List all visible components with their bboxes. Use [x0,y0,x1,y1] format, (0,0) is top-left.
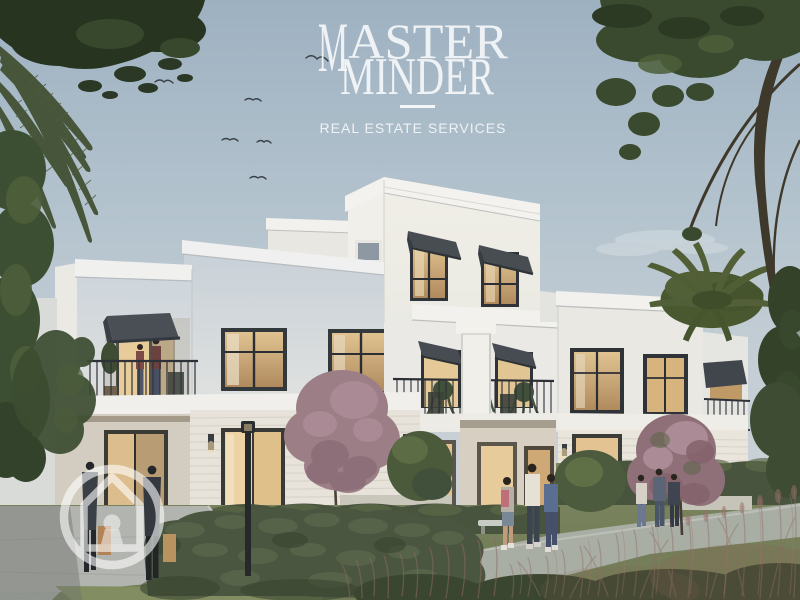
svg-text:REAL ESTATE SERVICES: REAL ESTATE SERVICES [320,120,509,136]
svg-text:MINDER: MINDER [340,48,494,106]
